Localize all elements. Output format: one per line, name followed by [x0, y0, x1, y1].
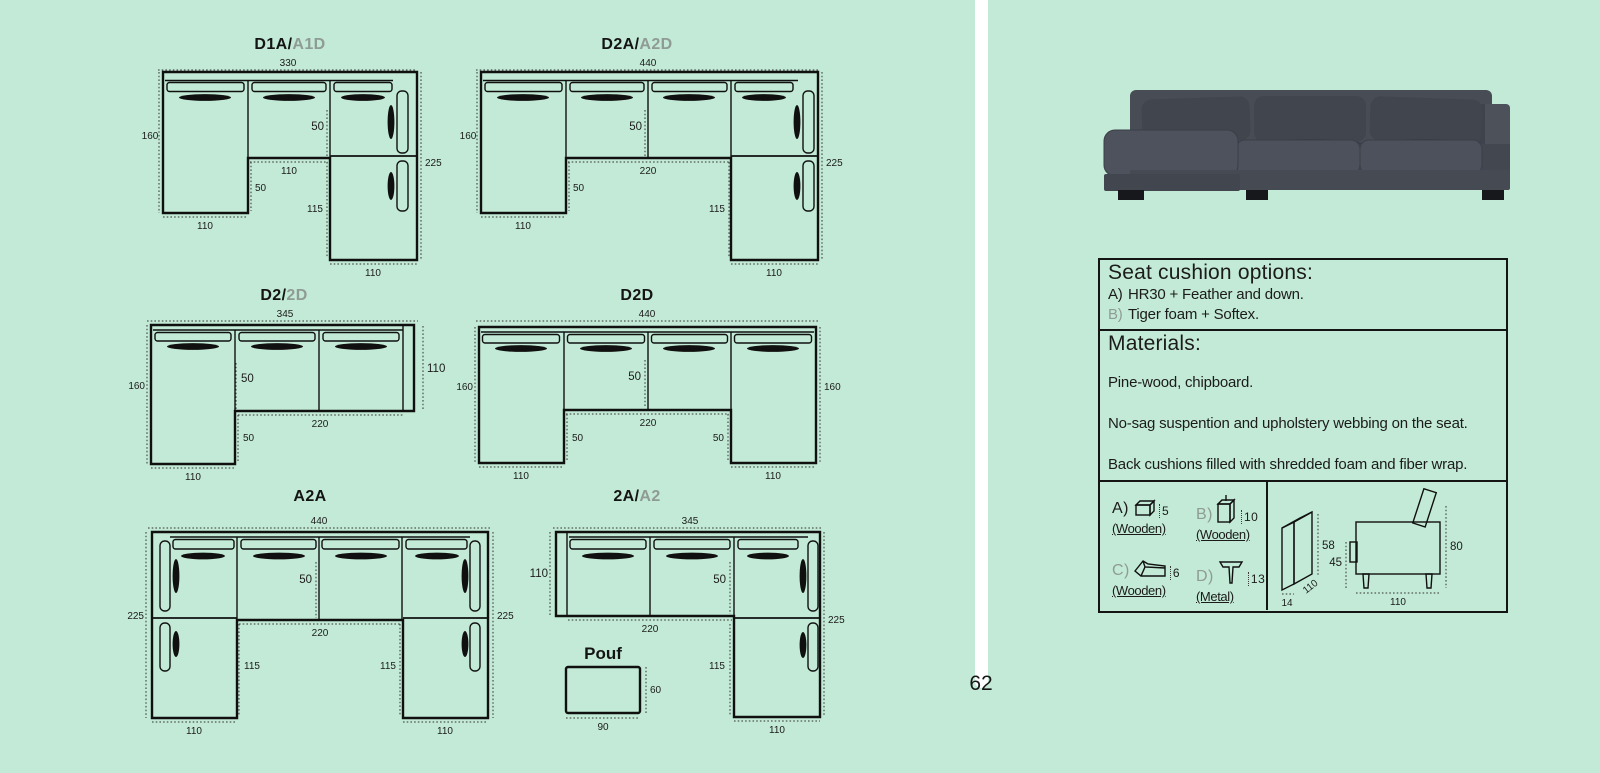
pouf-dim-height: 60: [650, 685, 662, 696]
dim-bottom-right: 110: [766, 268, 782, 279]
leg-label: D): [1196, 568, 1214, 586]
page-divider: [975, 0, 988, 688]
dim-bottom-left: 110: [513, 471, 529, 482]
option-label: B): [1108, 305, 1128, 325]
catalog-page: D1A/A1D D2A/A2D D2/2D D2D A2A 2A/A2 330 …: [0, 0, 1600, 773]
dim-right-inner: 115: [709, 661, 725, 672]
materials-line: No-sag suspention and upholstery webbing…: [1108, 415, 1498, 432]
leg-material: (Wooden): [1112, 521, 1196, 536]
legs-section: A) 5 (Wooden) B): [1100, 482, 1506, 610]
materials-title: Materials:: [1108, 332, 1498, 356]
dim-seat: 50: [241, 373, 254, 385]
leg-option-b: B) 10 (Wooden): [1196, 494, 1265, 548]
dim-mid: 220: [312, 419, 329, 430]
dim-right-drop: 50: [713, 433, 725, 444]
dim-bottom-right: 110: [769, 725, 785, 736]
dim-mid: 110: [281, 166, 297, 177]
dim-right: 110: [427, 363, 445, 375]
diagram-a2a: 440 225 50 220 115 115 110 110 225: [120, 483, 520, 741]
diagram-d1a: 330 160 50 110 50 110 115 225 110: [140, 35, 445, 281]
dim-bottom-right: 110: [765, 471, 781, 482]
dim-right-inner: 115: [307, 204, 323, 215]
cushion-width: 110: [1301, 578, 1321, 597]
dim-left: 160: [460, 131, 477, 142]
dim-left-inner: 115: [244, 661, 260, 672]
leg-label: B): [1196, 506, 1213, 524]
materials-line: Back cushions filled with shredded foam …: [1108, 456, 1498, 473]
leg-height: 13: [1248, 572, 1265, 586]
leg-option-a: A) 5 (Wooden): [1112, 494, 1196, 548]
dim-bottom-right: 110: [365, 268, 381, 279]
cushion-options-title: Seat cushion options:: [1108, 261, 1498, 285]
dim-right: 160: [824, 382, 841, 393]
pouf-title: Pouf: [584, 644, 622, 663]
dim-mid: 220: [640, 166, 657, 177]
dim-bottom-left: 110: [185, 472, 201, 483]
dim-bottom-right: 110: [437, 726, 453, 737]
option-label: A): [1108, 285, 1128, 305]
pouf-outline: [566, 667, 640, 713]
dim-bottom-left: 110: [186, 726, 202, 737]
dim-top: 440: [640, 58, 657, 69]
dim-right: 225: [826, 158, 843, 169]
dim-left: 160: [142, 131, 159, 142]
cushion-and-sideview-diagram: 58 14 110 80 45 110: [1268, 482, 1505, 607]
dim-left: 160: [128, 381, 145, 392]
dim-mid-drop: 50: [243, 433, 255, 444]
dim-right-inner: 115: [709, 204, 725, 215]
sofa-feet: [1118, 190, 1504, 200]
dim-left: 160: [456, 382, 473, 393]
leg-height: 5: [1159, 504, 1169, 518]
sideview-seat-height: 45: [1329, 557, 1342, 569]
dim-seat: 50: [713, 574, 726, 586]
materials-line: Pine-wood, chipboard.: [1108, 374, 1498, 391]
dim-bottom-left: 110: [197, 221, 213, 232]
dim-top: 330: [280, 58, 297, 69]
leg-material: (Metal): [1196, 589, 1265, 604]
option-text: Tiger foam + Softex.: [1128, 306, 1259, 323]
dim-seat: 50: [629, 121, 642, 133]
dim-mid: 220: [640, 418, 657, 429]
cushion-options-section: Seat cushion options: A)HR30 + Feather a…: [1100, 260, 1506, 331]
leg-options-cell: A) 5 (Wooden) B): [1100, 482, 1268, 610]
sideview-back-height: 80: [1450, 541, 1463, 553]
diagram-d2d: 440 160 50 220 50 50 110 110 160: [454, 283, 843, 488]
dim-top: 440: [639, 309, 656, 320]
dim-mid-drop: 50: [573, 183, 585, 194]
dim-left: 110: [530, 568, 548, 580]
cushion-height: 58: [1322, 540, 1335, 552]
dim-top: 345: [682, 516, 699, 527]
leg-option-d: D) 13 (Metal): [1196, 558, 1265, 610]
leg-material: (Wooden): [1196, 527, 1265, 542]
dim-seat: 50: [299, 574, 312, 586]
cushion-thickness: 14: [1281, 598, 1293, 609]
dim-mid: 220: [312, 628, 329, 639]
leg-material: (Wooden): [1112, 583, 1196, 598]
leg-label: A): [1112, 500, 1129, 518]
option-text: HR30 + Feather and down.: [1128, 286, 1304, 303]
dim-seat: 50: [311, 121, 324, 133]
angled-wooden-leg-icon: [1132, 558, 1168, 580]
sofa-photo: [1096, 84, 1510, 200]
tall-wooden-leg-icon: [1215, 494, 1239, 524]
dim-right-inner: 115: [380, 661, 396, 672]
dim-right: 225: [425, 158, 442, 169]
cushion-option-a: A)HR30 + Feather and down.: [1108, 285, 1498, 305]
dim-top: 440: [311, 516, 328, 527]
materials-section: Materials: Pine-wood, chipboard. No-sag …: [1100, 331, 1506, 482]
leg-option-c: C) 6 (Wooden): [1112, 558, 1196, 610]
leg-height: 6: [1170, 566, 1180, 580]
leg-label: C): [1112, 562, 1130, 580]
diagram-d2a: 440 160 50 220 50 110 115 225 110: [458, 35, 843, 281]
dim-right: 225: [497, 611, 514, 622]
page-number: 62: [960, 672, 1002, 696]
dimension-diagrams-cell: 58 14 110 80 45 110: [1268, 482, 1506, 610]
dim-left: 225: [127, 611, 144, 622]
sideview-depth: 110: [1390, 597, 1406, 608]
dim-bottom-left: 110: [515, 221, 531, 232]
info-box: Seat cushion options: A)HR30 + Feather a…: [1098, 258, 1508, 613]
dim-left-drop: 50: [572, 433, 584, 444]
metal-t-leg-icon: [1216, 558, 1246, 586]
wooden-block-leg-icon: [1131, 494, 1157, 518]
dim-top: 345: [277, 309, 294, 320]
dim-right: 225: [828, 615, 845, 626]
diagram-d2: 345 160 50 220 50 110 110: [120, 283, 445, 488]
diagram-a2-pouf: 345 110 50 220 115 225 110 Pouf 60 90: [520, 483, 850, 745]
leg-height: 10: [1241, 510, 1258, 524]
dim-mid-drop: 50: [255, 183, 267, 194]
cushion-option-b: B)Tiger foam + Softex.: [1108, 305, 1498, 325]
dim-mid: 220: [642, 624, 659, 635]
dim-seat: 50: [628, 371, 641, 383]
pouf-dim-width: 90: [597, 722, 609, 733]
